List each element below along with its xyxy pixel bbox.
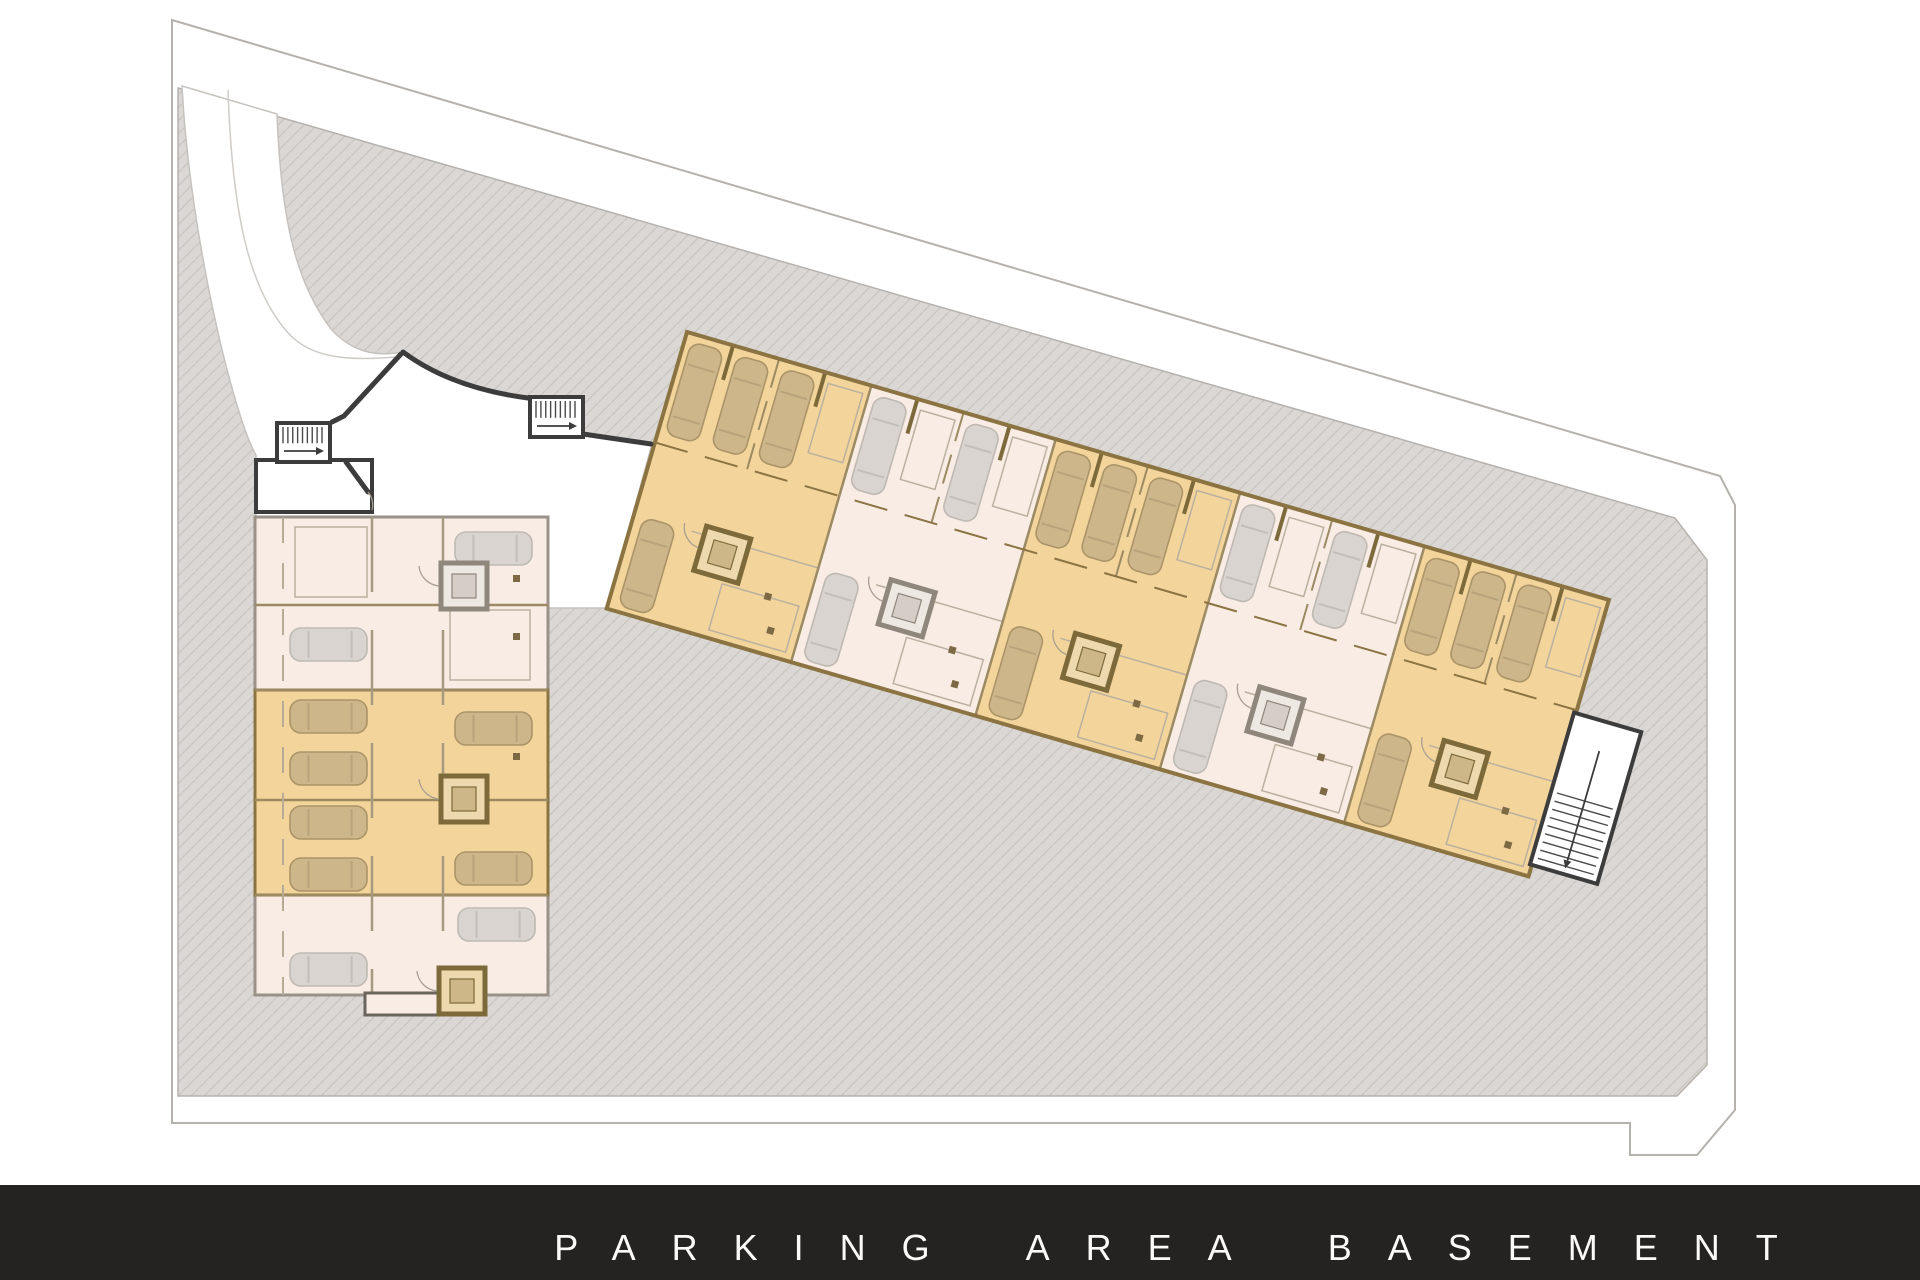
parking-car [290,628,367,661]
car-body [455,852,532,885]
parking-car [455,712,532,745]
parking-car [290,953,367,986]
car-body [290,752,367,785]
parking-car [455,852,532,885]
stair-room [530,397,583,437]
structural-column [513,753,520,760]
west-building [255,517,548,1015]
car-body [458,908,535,941]
car-body [290,628,367,661]
car-body [290,858,367,891]
car-body [290,806,367,839]
stair-room [277,423,330,462]
structural-column [513,575,520,582]
parking-basement-plan: PARKING AREA BASEMENT [0,0,1920,1280]
parking-car [290,700,367,733]
title-footer: PARKING AREA BASEMENT [0,1185,1920,1280]
elevator-cab [452,574,476,598]
parking-car [290,858,367,891]
page-title: PARKING AREA BASEMENT [554,1227,1813,1268]
floor-plan-page: PARKING AREA BASEMENT [0,0,1920,1280]
car-body [455,532,532,565]
entry-room [256,460,372,512]
elevator-cab [450,979,474,1003]
car-body [290,953,367,986]
elevator-cab [452,787,476,811]
car-body [290,700,367,733]
car-body [455,712,532,745]
parking-car [290,806,367,839]
parking-car [455,532,532,565]
structural-column [513,633,520,640]
parking-car [458,908,535,941]
parking-car [290,752,367,785]
